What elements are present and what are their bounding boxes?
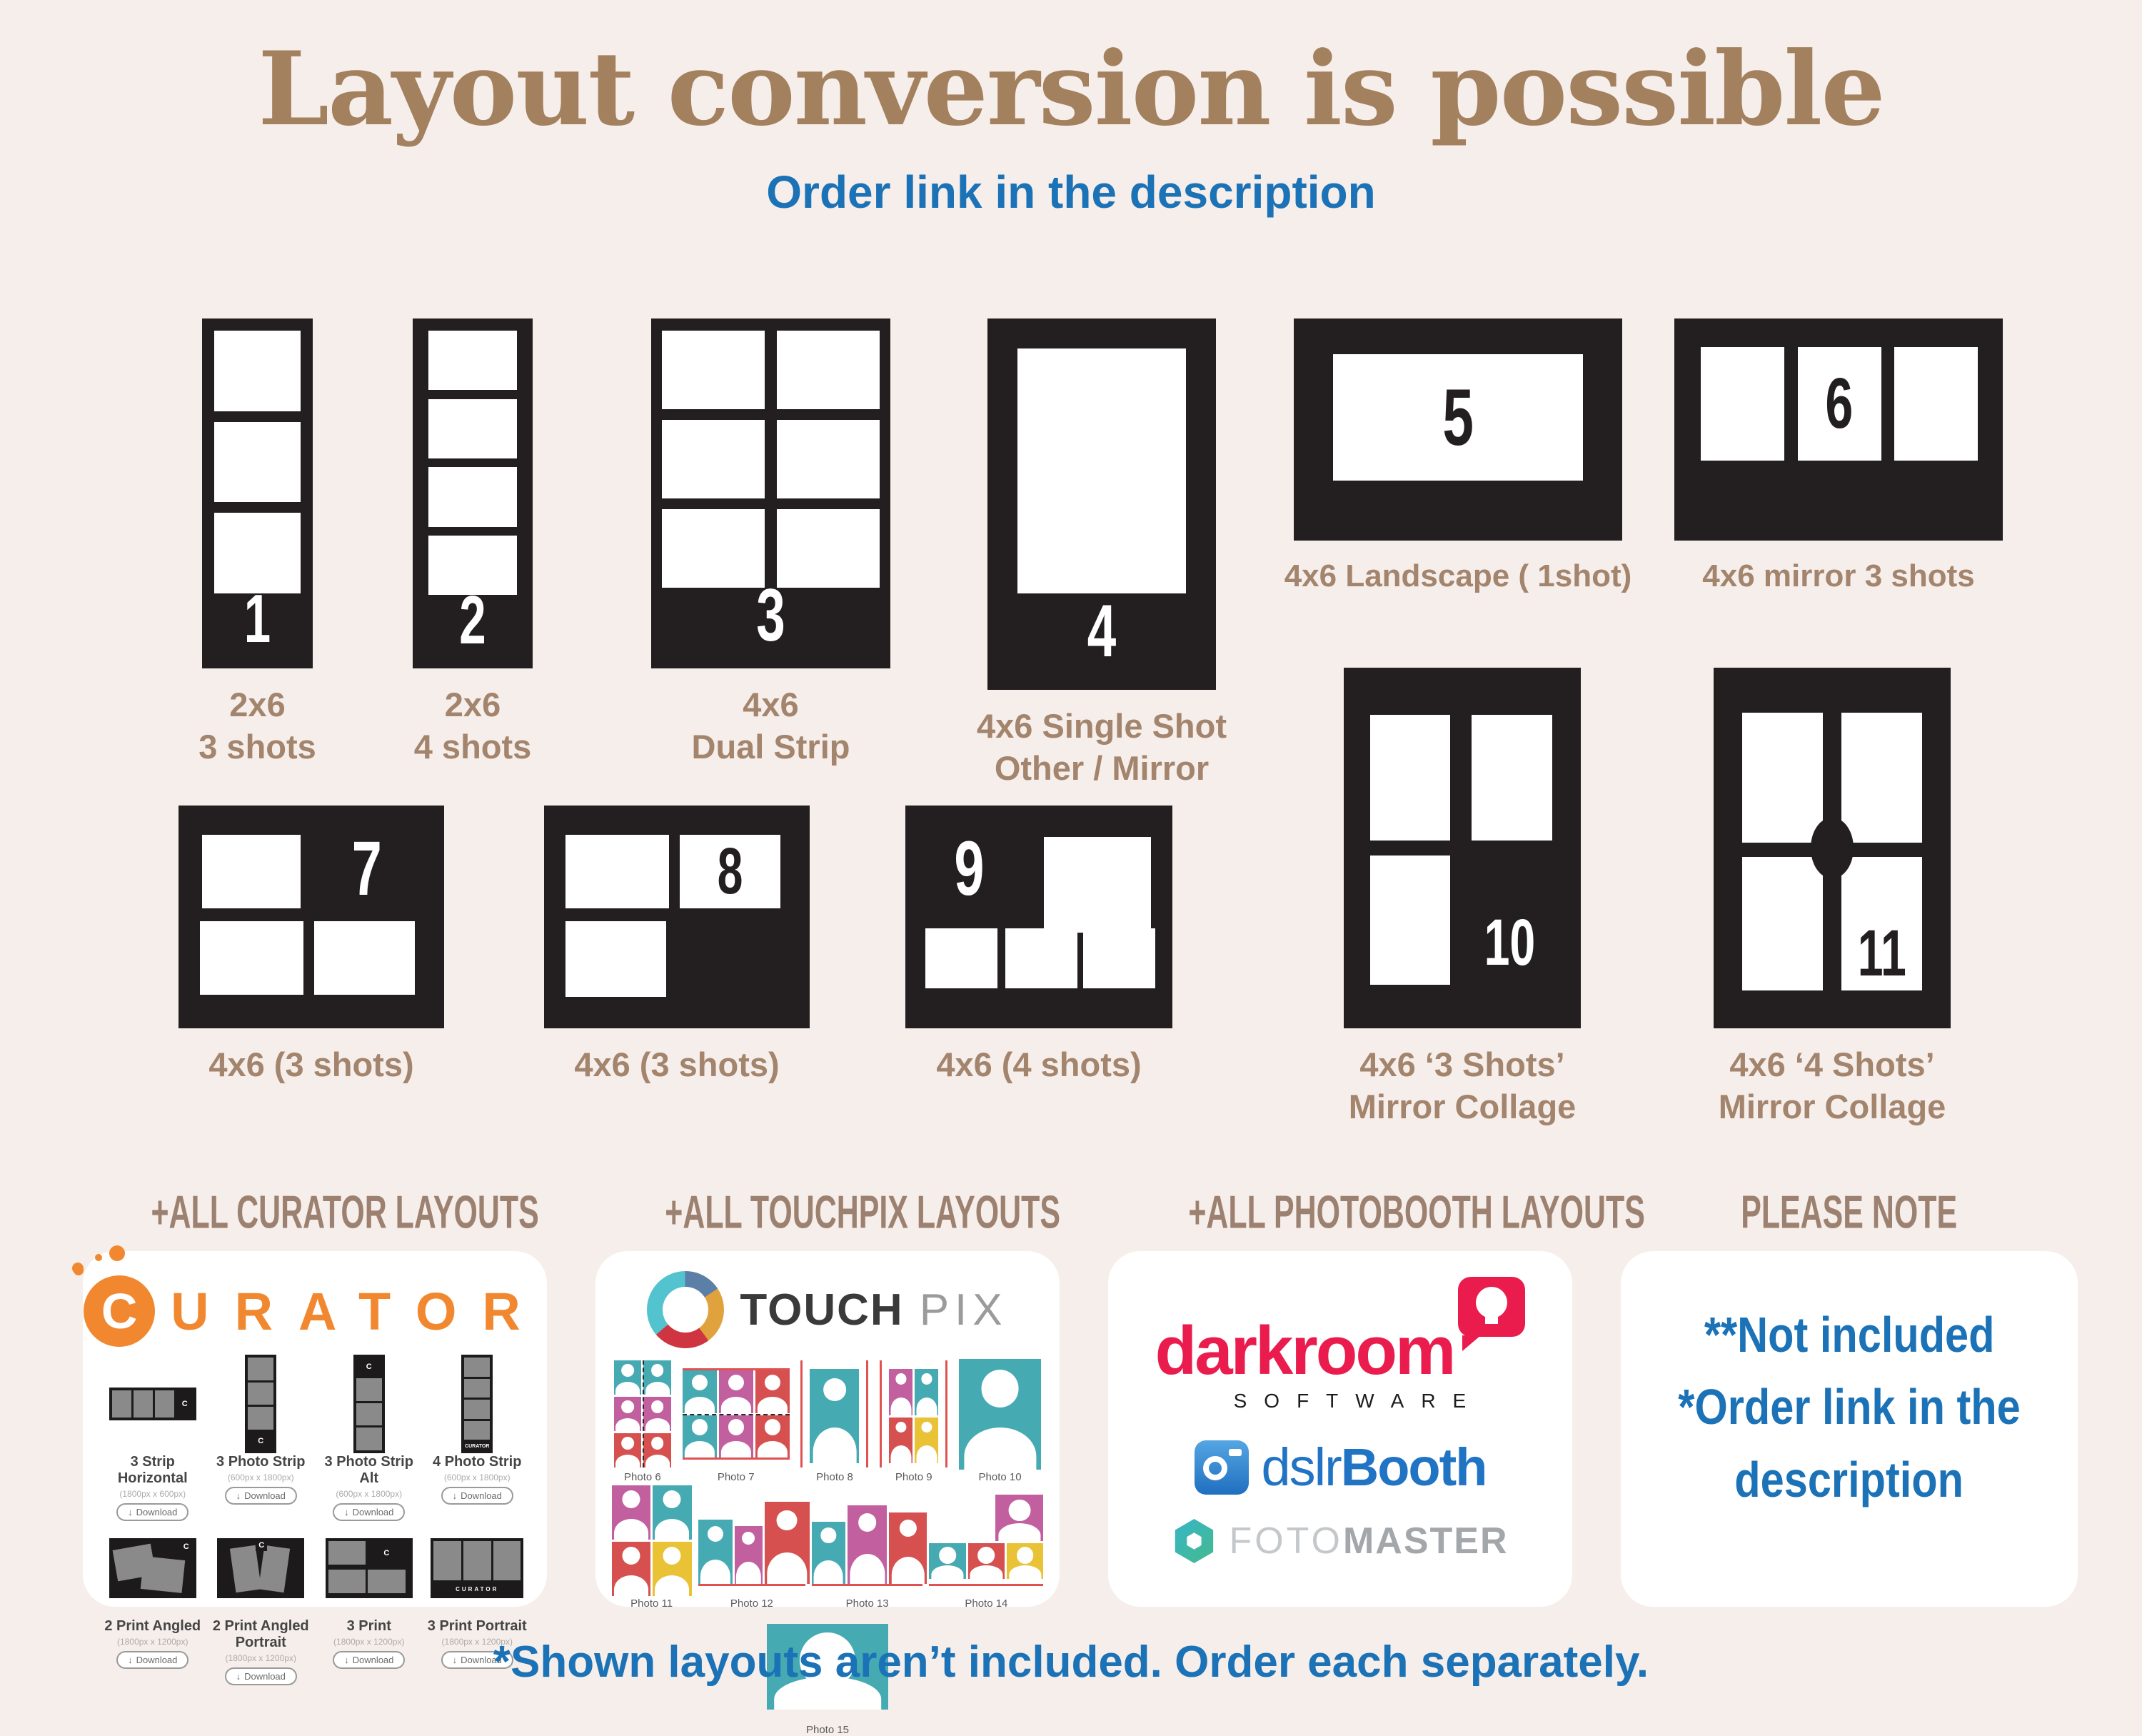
touchpix-thumb-box (698, 1486, 805, 1595)
person-silhouette (968, 1543, 1005, 1579)
person-silhouette (719, 1415, 753, 1458)
photo-cell (141, 1556, 185, 1593)
photo-tile (889, 1512, 927, 1584)
curator-thumbnail: C (326, 1538, 413, 1598)
layout-1-card: 1 (202, 318, 313, 668)
person-silhouette (719, 1370, 753, 1413)
download-button[interactable]: ↓Download (333, 1503, 405, 1521)
touchpix-layout-item: Photo 9 (880, 1360, 947, 1483)
layout-6-label: 4x6 mirror 3 shots (1702, 556, 1975, 596)
curator-card: C URATOR C3 Strip Horizontal(1800px x 60… (83, 1251, 547, 1607)
photo-tile (683, 1370, 717, 1413)
photo-cell (258, 1545, 290, 1592)
person-silhouette (812, 1522, 845, 1585)
person-silhouette (683, 1370, 717, 1413)
curator-layout-item: C3 Photo Strip Alt(600px x 1800px)↓Downl… (318, 1358, 421, 1521)
touchpix-thumb-box (929, 1486, 1043, 1595)
curator-item-name: 3 Print (318, 1618, 421, 1635)
person-silhouette (915, 1418, 938, 1464)
photo-tile (653, 1485, 692, 1540)
curator-mini-logo-icon: C (248, 1432, 273, 1450)
photo-tile (995, 1495, 1043, 1541)
touchpix-layout-item: Photo 10 (959, 1360, 1041, 1483)
curator-mini-logo-icon: C (356, 1358, 382, 1376)
note-line-1: **Not included (1704, 1299, 1995, 1372)
thumb-row (614, 1397, 671, 1431)
touchpix-thumbnail (683, 1368, 790, 1460)
curator-thumb-box: C (210, 1522, 313, 1614)
photo-tile (915, 1369, 938, 1415)
photo-slot (662, 331, 765, 409)
touchpix-section-header: +ALL TOUCHPIX LAYOUTS (595, 1188, 1060, 1234)
touchpix-layout-item: Photo 12 (698, 1486, 805, 1610)
photo-cell (493, 1541, 521, 1580)
thumb-row (683, 1415, 790, 1458)
touchpix-thumb-box (800, 1360, 868, 1468)
photo-cell (464, 1421, 490, 1440)
darkroom-logo: darkroom SOFTWARE (1155, 1277, 1526, 1413)
thumb-row (889, 1418, 938, 1464)
thumb-row (959, 1359, 1041, 1470)
touchpix-thumb-box (683, 1360, 790, 1468)
curator-logo: C URATOR (83, 1275, 547, 1347)
photo-tile (614, 1360, 642, 1395)
photo-tile (755, 1370, 790, 1413)
curator-thumbnail: C (217, 1538, 304, 1598)
photo-tile (959, 1359, 1041, 1470)
photo-cell (464, 1400, 490, 1419)
photo-tile (1007, 1543, 1043, 1579)
person-silhouette (698, 1520, 733, 1584)
photo-tile (929, 1543, 965, 1579)
touchpix-logo-bold: TOUCH (740, 1285, 903, 1335)
spacer (929, 1495, 993, 1541)
layout-5-label: 4x6 Landscape ( 1shot) (1284, 556, 1632, 596)
photo-cell (356, 1428, 382, 1450)
photo-slot (214, 331, 301, 411)
layout-10-card: 10 (1344, 668, 1581, 1028)
photo-slot (662, 420, 765, 498)
curator-thumb-box: C (318, 1522, 421, 1614)
touchpix-layout-item: Photo 14 (929, 1486, 1043, 1610)
touchpix-thumbnail (880, 1360, 947, 1467)
photo-cell (328, 1541, 366, 1565)
touchpix-thumbnail (812, 1495, 922, 1586)
center-ellipse (1811, 818, 1854, 879)
download-icon: ↓ (344, 1507, 349, 1517)
touchpix-thumb-label: Photo 12 (698, 1597, 805, 1610)
person-silhouette (653, 1542, 692, 1596)
person-silhouette (614, 1397, 642, 1431)
photo-slot (1370, 715, 1451, 841)
photo-slot (202, 835, 301, 908)
curator-item-dimensions: (600px x 1800px) (318, 1489, 421, 1499)
footer-disclaimer: *Shown layouts aren’t included. Order ea… (0, 1637, 2142, 1687)
layout-8-block: 8 4x6 (3 shots) (544, 806, 810, 1086)
thumb-row (433, 1541, 521, 1580)
person-silhouette (765, 1502, 810, 1584)
thumb-row (698, 1495, 805, 1584)
person-silhouette (848, 1505, 888, 1584)
layout-3-label: 4x6Dual Strip (692, 684, 850, 768)
curator-item-dimensions: (600px x 1800px) (210, 1472, 313, 1482)
photo-slot: 5 (1333, 354, 1583, 481)
layout-2-label: 2x64 shots (414, 684, 532, 768)
touchpix-layout-item: Photo 13 (812, 1486, 922, 1610)
curator-thumb-box: C (101, 1358, 204, 1450)
download-icon: ↓ (128, 1507, 133, 1517)
curator-layout-grid: C3 Strip Horizontal(1800px x 600px)↓Down… (83, 1347, 547, 1685)
layout-4-card: 4 (987, 318, 1216, 690)
person-silhouette (959, 1359, 1041, 1470)
person-silhouette (614, 1360, 642, 1395)
photo-slot (1701, 347, 1784, 461)
layout-7-block: 7 4x6 (3 shots) (178, 806, 444, 1086)
photo-slot (1472, 715, 1552, 841)
photo-tile (643, 1433, 671, 1467)
curator-mini-logo-icon: C (256, 1540, 267, 1551)
layout-7-card: 7 (178, 806, 444, 1028)
dslrbooth-camera-icon (1195, 1440, 1249, 1495)
touchpix-thumb-box (614, 1360, 671, 1468)
touchpix-card: TOUCHPIX Photo 6Photo 7Photo 8Photo 9Pho… (595, 1251, 1060, 1607)
person-silhouette (810, 1369, 859, 1463)
touchpix-logo-light: PIX (920, 1285, 1008, 1335)
person-silhouette (929, 1543, 965, 1579)
person-silhouette (612, 1485, 651, 1540)
fotomaster-logo: FOTOMASTER (1172, 1519, 1508, 1563)
layout-9-block: 9 4x6 (4 shots) (905, 806, 1172, 1086)
touchpix-layout-item: Photo 11 (612, 1486, 692, 1610)
photo-tile (755, 1415, 790, 1458)
curator-thumbnail: CURATOR (461, 1355, 493, 1453)
curator-mini-logo-icon: CURATOR (464, 1442, 490, 1450)
photo-slot (1742, 857, 1823, 990)
layout-number: 4 (1022, 589, 1182, 674)
photo-cell (433, 1541, 461, 1580)
touchpix-thumbnail (698, 1495, 805, 1586)
touchpix-thumb-label: Photo 10 (959, 1471, 1041, 1483)
photo-cell (368, 1570, 405, 1593)
curator-thumb-box: C (318, 1358, 421, 1450)
curator-thumb-box: CURATOR (426, 1358, 529, 1450)
photo-slot (428, 331, 517, 390)
photo-slot (200, 921, 303, 995)
photo-slot (214, 422, 301, 503)
photo-tile (614, 1397, 642, 1431)
photo-cell (356, 1403, 382, 1426)
photo-tile (968, 1543, 1005, 1579)
person-silhouette (614, 1433, 642, 1467)
photo-slot (565, 921, 666, 997)
layout-6-card: 6 (1674, 318, 2003, 541)
layout-5-card: 5 (1294, 318, 1622, 541)
layout-number: 3 (687, 573, 855, 658)
photo-slot (1017, 348, 1187, 593)
photo-cell (155, 1390, 174, 1418)
photo-cell (248, 1407, 273, 1430)
layout-10-block: 10 4x6 ‘3 Shots’Mirror Collage (1344, 668, 1581, 1128)
photo-tile (612, 1485, 651, 1540)
thumb-row (889, 1369, 938, 1415)
person-silhouette (643, 1433, 671, 1467)
photo-cell (328, 1570, 366, 1593)
download-button[interactable]: ↓Download (225, 1487, 297, 1505)
photo-tile (810, 1369, 859, 1463)
layout-number: 8 (717, 834, 743, 909)
darkroom-software-text: SOFTWARE (1234, 1390, 1526, 1413)
layout-number: 7 (339, 823, 395, 913)
photo-tile (643, 1397, 671, 1431)
photo-slot (565, 835, 669, 908)
layout-8-card: 8 (544, 806, 810, 1028)
touchpix-thumb-label: Photo 13 (812, 1597, 922, 1610)
photo-cell (248, 1358, 273, 1380)
curator-item-name: 3 Photo Strip Alt (318, 1454, 421, 1487)
photo-cell (248, 1383, 273, 1405)
curator-mini-logo-icon: C (181, 1541, 192, 1552)
person-silhouette (643, 1360, 671, 1395)
touchpix-thumbnail (800, 1360, 868, 1467)
person-silhouette (735, 1526, 763, 1584)
photo-tile (719, 1370, 753, 1413)
touchpix-thumbnail (614, 1360, 671, 1467)
download-button[interactable]: ↓Download (441, 1487, 513, 1505)
photo-tile (889, 1369, 912, 1415)
curator-logo-text: URATOR (171, 1281, 546, 1342)
layout-9-card: 9 (905, 806, 1172, 1028)
download-button[interactable]: ↓Download (116, 1503, 188, 1521)
touchpix-layout-item: Photo 6 (614, 1360, 671, 1483)
curator-item-name: 3 Photo Strip (210, 1454, 313, 1470)
curator-item-dimensions: (600px x 1800px) (426, 1472, 529, 1482)
please-note-card: **Not included *Order link in the descri… (1621, 1251, 2078, 1607)
layout-3-block: 3 4x6Dual Strip (651, 318, 890, 768)
fotomaster-aperture-icon (1172, 1519, 1216, 1563)
curator-mini-logo-icon: C (176, 1390, 193, 1418)
thumb-row (810, 1369, 859, 1463)
touchpix-ring-icon (647, 1271, 724, 1348)
curator-mini-logo-icon: C (368, 1541, 405, 1565)
layout-3-card: 3 (651, 318, 890, 668)
layout-number: 10 (1477, 905, 1543, 980)
note-line-2: *Order link in the (1678, 1371, 2020, 1444)
photo-slot (1894, 347, 1978, 461)
thumb-row (929, 1495, 1043, 1541)
person-silhouette (889, 1418, 912, 1464)
photo-tile (735, 1526, 763, 1584)
layout-4-label: 4x6 Single ShotOther / Mirror (977, 706, 1227, 790)
photo-tile (698, 1520, 733, 1584)
layout-2-card: 2 (413, 318, 533, 668)
person-silhouette (889, 1512, 927, 1584)
photo-tile (653, 1542, 692, 1596)
person-silhouette (643, 1397, 671, 1431)
thumb-row (614, 1360, 671, 1395)
touchpix-thumb-box (959, 1360, 1041, 1468)
photo-tile (889, 1418, 912, 1464)
layout-number: 1 (218, 580, 296, 658)
curator-thumb-box: C (101, 1522, 204, 1614)
curator-layout-item: C3 Strip Horizontal(1800px x 600px)↓Down… (101, 1358, 204, 1521)
page-title: Layout conversion is possible (0, 30, 2142, 149)
layout-1-label: 2x63 shots (198, 684, 316, 768)
thumb-row (614, 1433, 671, 1467)
note-section-header: PLEASE NOTE (1621, 1188, 2078, 1234)
photo-tile (915, 1418, 938, 1464)
curator-mini-logo-icon: CURATOR (433, 1582, 521, 1595)
curator-thumbnail: C (109, 1538, 196, 1598)
photo-slot (1742, 713, 1823, 843)
photo-slot (428, 399, 517, 458)
curator-thumbnail: C (245, 1355, 276, 1453)
touchpix-thumb-label: Photo 7 (683, 1471, 790, 1483)
person-silhouette (915, 1369, 938, 1415)
layout-number: 2 (431, 581, 515, 660)
layout-11-label: 4x6 ‘4 Shots’Mirror Collage (1719, 1044, 1946, 1128)
layout-number: 5 (1442, 371, 1474, 463)
photo-tile (848, 1505, 888, 1584)
thumb-row (612, 1542, 692, 1596)
thumb-row (683, 1370, 790, 1413)
touchpix-logo: TOUCHPIX (595, 1271, 1060, 1348)
curator-item-name: 2 Print Angled (101, 1618, 204, 1635)
photo-slot (1005, 928, 1077, 988)
layout-7-label: 4x6 (3 shots) (208, 1044, 413, 1086)
touchpix-thumb-box (880, 1360, 947, 1468)
person-silhouette (755, 1370, 790, 1413)
layout-2-block: 2 2x64 shots (413, 318, 533, 768)
curator-thumb-box: CURATOR (426, 1522, 529, 1614)
person-silhouette (1007, 1543, 1043, 1579)
layout-11-card: 11 (1714, 668, 1951, 1028)
curator-layout-item: C3 Photo Strip(600px x 1800px)↓Download (210, 1358, 313, 1521)
layout-number: 9 (943, 823, 995, 913)
person-silhouette (995, 1495, 1043, 1541)
curator-layout-item: CURATOR4 Photo Strip(600px x 1800px)↓Dow… (426, 1358, 529, 1521)
touchpix-thumb-label: Photo 14 (929, 1597, 1043, 1610)
curator-thumbnail: C (109, 1388, 196, 1420)
photo-slot: 6 (1798, 347, 1881, 461)
photo-slot (777, 331, 880, 409)
photobooth-section-header: +ALL PHOTOBOOTH LAYOUTS (1108, 1188, 1572, 1234)
layout-1-block: 1 2x63 shots (202, 318, 313, 768)
touchpix-thumbnail (929, 1495, 1043, 1586)
curator-c-icon: C (84, 1275, 155, 1347)
photo-tile (643, 1360, 671, 1395)
photo-slot: 8 (680, 835, 780, 908)
download-icon: ↓ (236, 1490, 241, 1501)
curator-item-dimensions: (1800px x 600px) (101, 1489, 204, 1499)
person-silhouette (889, 1369, 912, 1415)
touchpix-layout-item: Photo 8 (800, 1360, 868, 1483)
photo-slot (1083, 928, 1155, 988)
photo-cell (464, 1358, 490, 1377)
photo-slot (1044, 837, 1151, 933)
photo-cell (464, 1379, 490, 1398)
thumb-row (612, 1485, 692, 1540)
touchpix-thumb-label: Photo 6 (614, 1471, 671, 1483)
touchpix-thumb-label: Photo 8 (800, 1471, 868, 1483)
photo-tile (719, 1415, 753, 1458)
touchpix-layout-item: Photo 7 (683, 1360, 790, 1483)
curator-item-name: 4 Photo Strip (426, 1454, 529, 1470)
touchpix-thumbnail (959, 1359, 1041, 1470)
photo-slot (925, 928, 997, 988)
person-silhouette (653, 1485, 692, 1540)
person-silhouette (612, 1542, 651, 1596)
touchpix-thumbnail (612, 1485, 692, 1596)
photo-slot (1841, 713, 1922, 843)
dslrbooth-logo: dslrBooth (1195, 1437, 1487, 1497)
photo-cell (356, 1378, 382, 1401)
photo-slot (777, 420, 880, 498)
download-icon: ↓ (453, 1490, 458, 1501)
curator-item-name: 3 Strip Horizontal (101, 1454, 204, 1487)
layout-5-block: 5 4x6 Landscape ( 1shot) (1294, 318, 1622, 596)
curator-thumb-box: C (210, 1358, 313, 1450)
photo-cell (463, 1541, 491, 1580)
curator-item-name: 3 Print Portrait (426, 1618, 529, 1635)
photo-cell (230, 1545, 261, 1592)
photobooth-logos: darkroom SOFTWARE dslrBooth FOTOMASTER (1108, 1251, 1572, 1563)
thumb-row (929, 1543, 1043, 1579)
photo-tile (683, 1415, 717, 1458)
person-silhouette (683, 1415, 717, 1458)
photo-slot (1370, 856, 1451, 985)
curator-thumbnail: C (353, 1355, 385, 1453)
photo-tile (614, 1433, 642, 1467)
touchpix-thumb-box (612, 1486, 692, 1595)
person-silhouette (755, 1415, 790, 1458)
darkroom-wordmark: darkroom (1155, 1317, 1454, 1385)
darkroom-bulb-icon (1458, 1277, 1525, 1337)
layout-9-label: 4x6 (4 shots) (936, 1044, 1141, 1086)
note-line-3: description (1735, 1444, 1964, 1517)
layout-number: 11 (1857, 916, 1907, 991)
layout-number: 6 (1826, 363, 1854, 445)
touchpix-thumb-box (812, 1486, 922, 1595)
layout-8-label: 4x6 (3 shots) (574, 1044, 779, 1086)
photo-cell (134, 1390, 153, 1418)
layout-10-label: 4x6 ‘3 Shots’Mirror Collage (1349, 1044, 1577, 1128)
page-subtitle: Order link in the description (0, 166, 2142, 219)
touchpix-thumb-label: Photo 11 (612, 1597, 692, 1610)
touchpix-thumb-label: Photo 9 (880, 1471, 947, 1483)
photo-tile (765, 1502, 810, 1584)
layout-6-block: 6 4x6 mirror 3 shots (1674, 318, 2003, 596)
photobooth-card: darkroom SOFTWARE dslrBooth FOTOMASTER (1108, 1251, 1572, 1607)
curator-section-header: +ALL CURATOR LAYOUTS (83, 1188, 547, 1234)
layout-4-block: 4 4x6 Single ShotOther / Mirror (987, 318, 1216, 790)
photo-tile (812, 1522, 845, 1585)
curator-thumbnail: CURATOR (431, 1538, 523, 1598)
layout-11-block: 11 4x6 ‘4 Shots’Mirror Collage (1714, 668, 1951, 1128)
photo-slot (428, 467, 517, 526)
photo-slot (314, 921, 415, 995)
touchpix-thumb-label: Photo 15 (767, 1724, 888, 1736)
photo-tile (612, 1542, 651, 1596)
photo-cell (112, 1390, 131, 1418)
thumb-row (812, 1495, 922, 1584)
